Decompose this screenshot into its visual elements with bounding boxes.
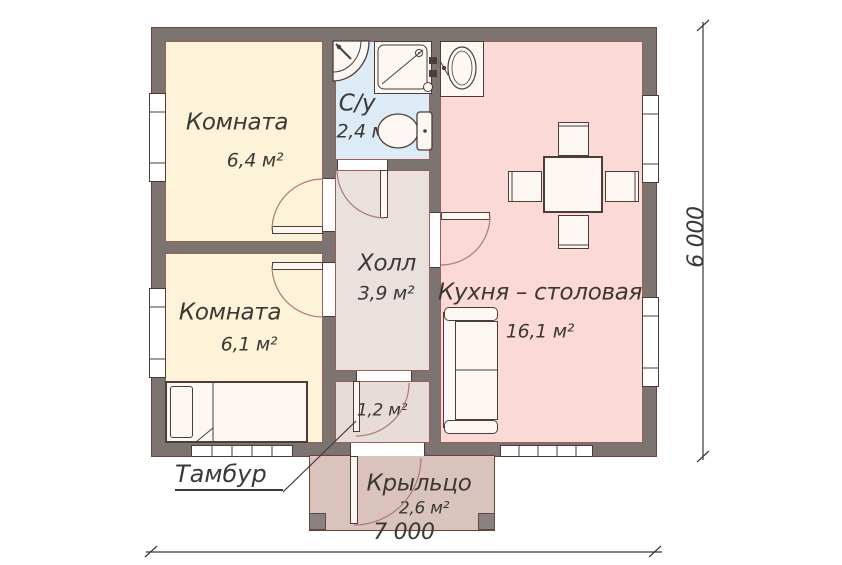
porch-post-right <box>479 514 494 529</box>
kitchen-area: 16,1 м² <box>506 323 574 342</box>
sofa-armrest-bottom <box>444 420 498 434</box>
sofa-armrest-top <box>444 307 498 321</box>
door-leaf-entrance <box>350 456 358 524</box>
tambour-callout-label: Тамбур <box>175 462 283 491</box>
door-opening-bathroom <box>337 160 388 170</box>
bed-pillow <box>170 386 193 438</box>
porch-area: 2,6 м² <box>399 501 449 518</box>
window-right-2 <box>642 297 659 387</box>
chair-bottom <box>558 215 589 249</box>
window-right-1 <box>642 95 659 183</box>
door-opening-bedroom-1 <box>323 178 335 232</box>
kitchen-sink-counter <box>440 41 484 97</box>
window-left-1 <box>149 93 166 182</box>
bathroom-label: С/у <box>339 93 376 116</box>
dimension-width-label: 7 000 <box>373 522 434 544</box>
door-opening-kitchen <box>430 212 440 268</box>
bedroom-2-label: Комната <box>179 302 281 325</box>
door-leaf-bedroom-2 <box>272 262 323 270</box>
shower-cabin <box>374 41 432 94</box>
floor-plan: Комната 6,4 м² С/у 2,4 м Комната 6,1 м² … <box>0 0 842 565</box>
window-bottom-2 <box>500 445 593 457</box>
kitchen-label: Кухня – столовая <box>438 282 642 305</box>
porch-post-left <box>310 514 325 529</box>
bedroom-1-label: Комната <box>186 112 288 135</box>
room-bedroom-1 <box>165 41 323 242</box>
chair-right <box>605 171 639 202</box>
bedroom-2-area: 6,1 м² <box>221 336 277 355</box>
sofa-seat <box>455 321 498 420</box>
chair-left <box>508 171 542 202</box>
door-opening-bedroom-2 <box>323 262 335 317</box>
door-leaf-bathroom <box>380 170 388 218</box>
door-opening-tambour <box>356 371 412 381</box>
tambour-area: 1,2 м² <box>357 403 407 420</box>
door-leaf-kitchen <box>441 212 490 220</box>
dimension-height-label: 6 000 <box>686 206 708 267</box>
window-bottom-1 <box>191 445 293 457</box>
bedroom-1-area: 6,4 м² <box>227 152 283 171</box>
window-left-2 <box>149 288 166 378</box>
hall-label: Холл <box>358 253 416 276</box>
door-leaf-bedroom-1 <box>272 226 323 234</box>
hall-area: 3,9 м² <box>358 285 414 304</box>
bathroom-area: 2,4 м <box>336 123 385 142</box>
porch-label: Крыльцо <box>367 473 472 496</box>
door-opening-entrance <box>350 443 425 456</box>
chair-top <box>558 122 589 156</box>
dining-table <box>543 156 603 213</box>
